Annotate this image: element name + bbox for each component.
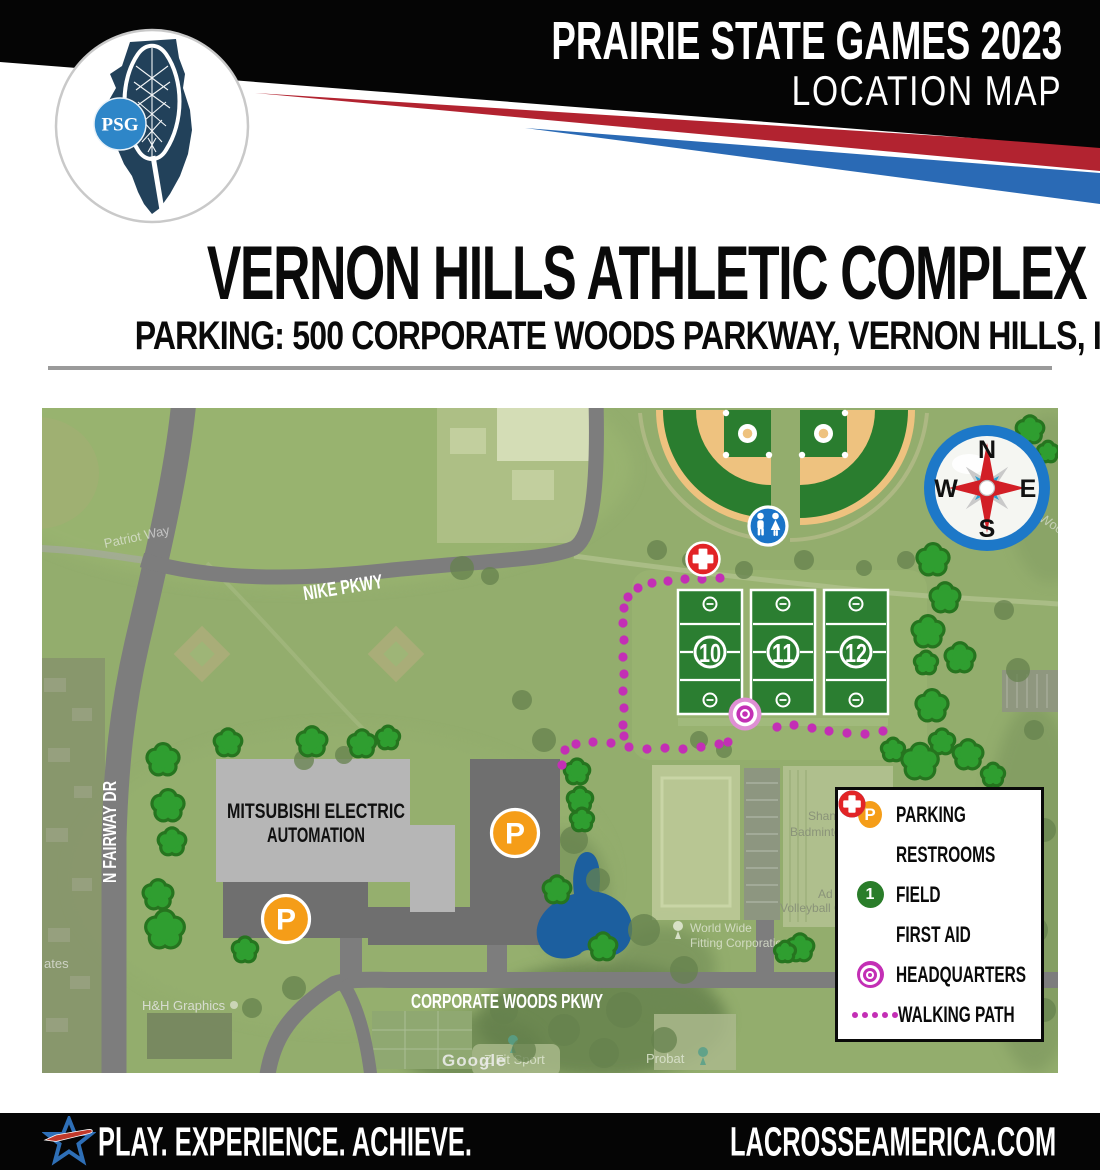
base-tree [897, 551, 915, 569]
path-dot [618, 652, 627, 661]
path-dot [772, 722, 781, 731]
svg-text:H&H Graphics: H&H Graphics [142, 998, 226, 1013]
path-dot [623, 592, 632, 601]
base-tree [450, 556, 474, 580]
base-tree [606, 992, 642, 1028]
base-tree [589, 1038, 619, 1068]
base-tree [512, 690, 532, 710]
base-tree [548, 1014, 580, 1046]
base-tree [1024, 720, 1044, 740]
base-tree [735, 561, 753, 579]
path-dot [618, 686, 627, 695]
google-watermark: Google [442, 1051, 507, 1070]
compass-rose: N S E W [924, 425, 1050, 551]
path-dot [642, 744, 651, 753]
svg-text:Probat: Probat [646, 1051, 685, 1066]
venue-title: VERNON HILLS ATHLETIC COMPLEX [207, 236, 1086, 312]
legend-item-headquarters: HEADQUARTERS [856, 961, 1041, 989]
path-dot [878, 726, 887, 735]
svg-text:Volleyball C: Volleyball C [780, 901, 843, 915]
field-number: 12 [845, 638, 867, 668]
path-dot [715, 573, 724, 582]
psg-logo: PSG [52, 26, 252, 226]
corporate-woods-label: CORPORATE WOODS PKWY [411, 991, 603, 1013]
path-dot [619, 669, 628, 678]
lacrosse-field-10: 10 [678, 590, 742, 714]
base-tree [242, 998, 262, 1018]
path-dot [588, 737, 597, 746]
headquarters-icon [856, 961, 884, 989]
svg-text:World Wide: World Wide [690, 921, 752, 935]
compass-s: S [979, 515, 996, 543]
event-title: PRAIRIE STATE GAMES 2023 [551, 14, 1062, 68]
building-label-1: MITSUBISHI ELECTRIC [227, 800, 405, 823]
psg-initials: PSG [102, 115, 139, 136]
divider-rule [48, 366, 1052, 370]
flyer-page: PRAIRIE STATE GAMES 2023 LOCATION MAP PS… [0, 0, 1100, 1170]
legend-item-firstaid: FIRST AID [856, 921, 1041, 949]
base-tree [481, 567, 499, 585]
base-tree [532, 728, 556, 752]
svg-text:Shan: Shan [808, 809, 836, 823]
path-dot [824, 726, 833, 735]
path-dot [606, 738, 615, 747]
base-tree [1006, 658, 1030, 682]
base-tree [794, 550, 814, 570]
map-legend: P PARKING RESTROOMS 1 FIELD [835, 787, 1044, 1042]
legend-item-walkingpath: WALKING PATH [856, 1001, 1041, 1029]
path-dot [618, 720, 627, 729]
footer-website: LACROSSEAMERICA.COM [730, 1118, 1056, 1165]
parking-marker-1: P [263, 896, 310, 943]
path-dot [663, 576, 672, 585]
lacrosse-fields: 101112 [678, 590, 888, 714]
base-tree [586, 868, 610, 892]
location-map: Patriot Way Wood ates H&H Graphics Shan … [42, 408, 1058, 1073]
field-number: 11 [772, 638, 794, 668]
base-tree [628, 914, 660, 946]
legend-item-field: 1 FIELD [856, 881, 1041, 909]
path-dot [619, 603, 628, 612]
star-logo [42, 1116, 96, 1168]
path-dot [618, 618, 627, 627]
path-dot [660, 743, 669, 752]
restrooms-icon [856, 841, 884, 869]
svg-text:ates: ates [44, 956, 69, 971]
path-dot [789, 720, 798, 729]
field-icon: 1 [857, 881, 884, 908]
base-tree [647, 540, 667, 560]
path-dot [860, 729, 869, 738]
svg-text:P: P [276, 904, 296, 937]
bleachers [678, 718, 888, 726]
path-dot [571, 739, 580, 748]
path-dot [696, 742, 705, 751]
parking-marker-2: P [492, 810, 539, 857]
base-tree [670, 956, 698, 984]
base-tree [856, 560, 872, 576]
svg-text:P: P [505, 818, 525, 851]
compass-w: W [934, 475, 958, 503]
footer-bar: PLAY. EXPERIENCE. ACHIEVE. LACROSSEAMERI… [0, 1113, 1100, 1170]
headquarters-marker [729, 698, 762, 731]
path-dot [560, 745, 569, 754]
legend-item-restrooms: RESTROOMS [856, 841, 1041, 869]
base-tree [994, 600, 1014, 620]
path-dot [723, 737, 732, 746]
path-dot [807, 723, 816, 732]
path-dot [680, 574, 689, 583]
title-block: VERNON HILLS ATHLETIC COMPLEX PARKING: 5… [0, 236, 1100, 356]
path-dot [619, 635, 628, 644]
path-dot [647, 578, 656, 587]
building-label-2: AUTOMATION [267, 824, 365, 847]
svg-text:Ad: Ad [818, 887, 833, 901]
path-dot [557, 760, 566, 769]
base-tree [651, 1027, 677, 1053]
first-aid-icon [856, 921, 884, 949]
lacrosse-field-11: 11 [751, 590, 815, 714]
path-dot [678, 744, 687, 753]
path-dot [633, 583, 642, 592]
compass-e: E [1020, 475, 1037, 503]
base-tree [282, 976, 306, 1000]
walking-path-icon [856, 1001, 894, 1029]
footer-tagline: PLAY. EXPERIENCE. ACHIEVE. [98, 1118, 472, 1165]
path-dot [619, 703, 628, 712]
base-tree [512, 1038, 536, 1062]
path-dot [619, 731, 628, 740]
parking-address: PARKING: 500 CORPORATE WOODS PARKWAY, VE… [135, 316, 1100, 356]
first-aid-marker [687, 543, 720, 576]
header-banner: PRAIRIE STATE GAMES 2023 LOCATION MAP PS… [0, 0, 1100, 215]
compass-n: N [978, 436, 996, 464]
legend-item-parking: P PARKING [856, 801, 1041, 829]
path-dot [714, 739, 723, 748]
field-number: 10 [699, 638, 721, 668]
path-dot [624, 742, 633, 751]
path-dot [842, 728, 851, 737]
restrooms-marker [749, 507, 787, 545]
lacrosse-field-12: 12 [824, 590, 888, 714]
event-subtitle: LOCATION MAP [791, 70, 1062, 112]
fairway-dr-label: N FAIRWAY DR [100, 781, 120, 883]
